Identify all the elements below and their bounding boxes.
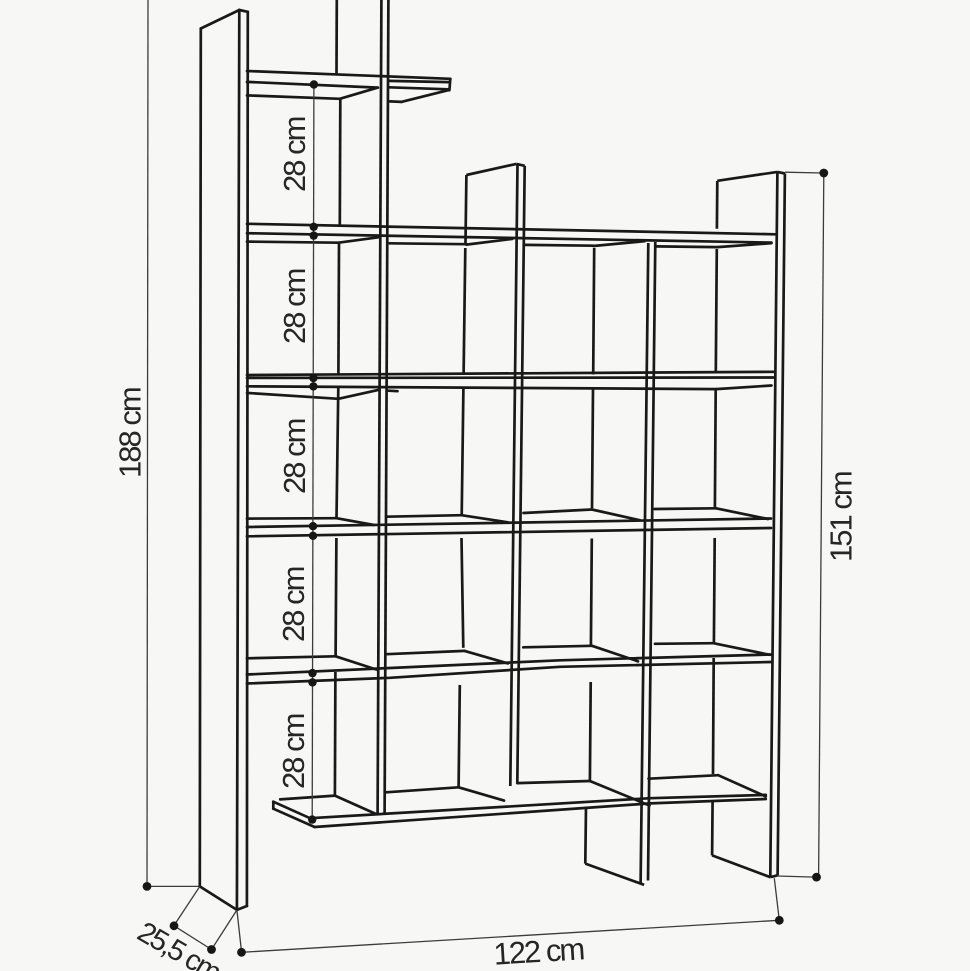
svg-text:28 cm: 28 cm: [276, 714, 311, 789]
svg-text:28 cm: 28 cm: [277, 419, 312, 494]
svg-text:28 cm: 28 cm: [277, 269, 312, 344]
svg-text:122 cm: 122 cm: [493, 931, 585, 971]
svg-text:188 cm: 188 cm: [113, 388, 148, 478]
svg-text:28 cm: 28 cm: [276, 567, 311, 642]
svg-text:28 cm: 28 cm: [277, 117, 312, 192]
svg-text:151 cm: 151 cm: [824, 472, 859, 562]
